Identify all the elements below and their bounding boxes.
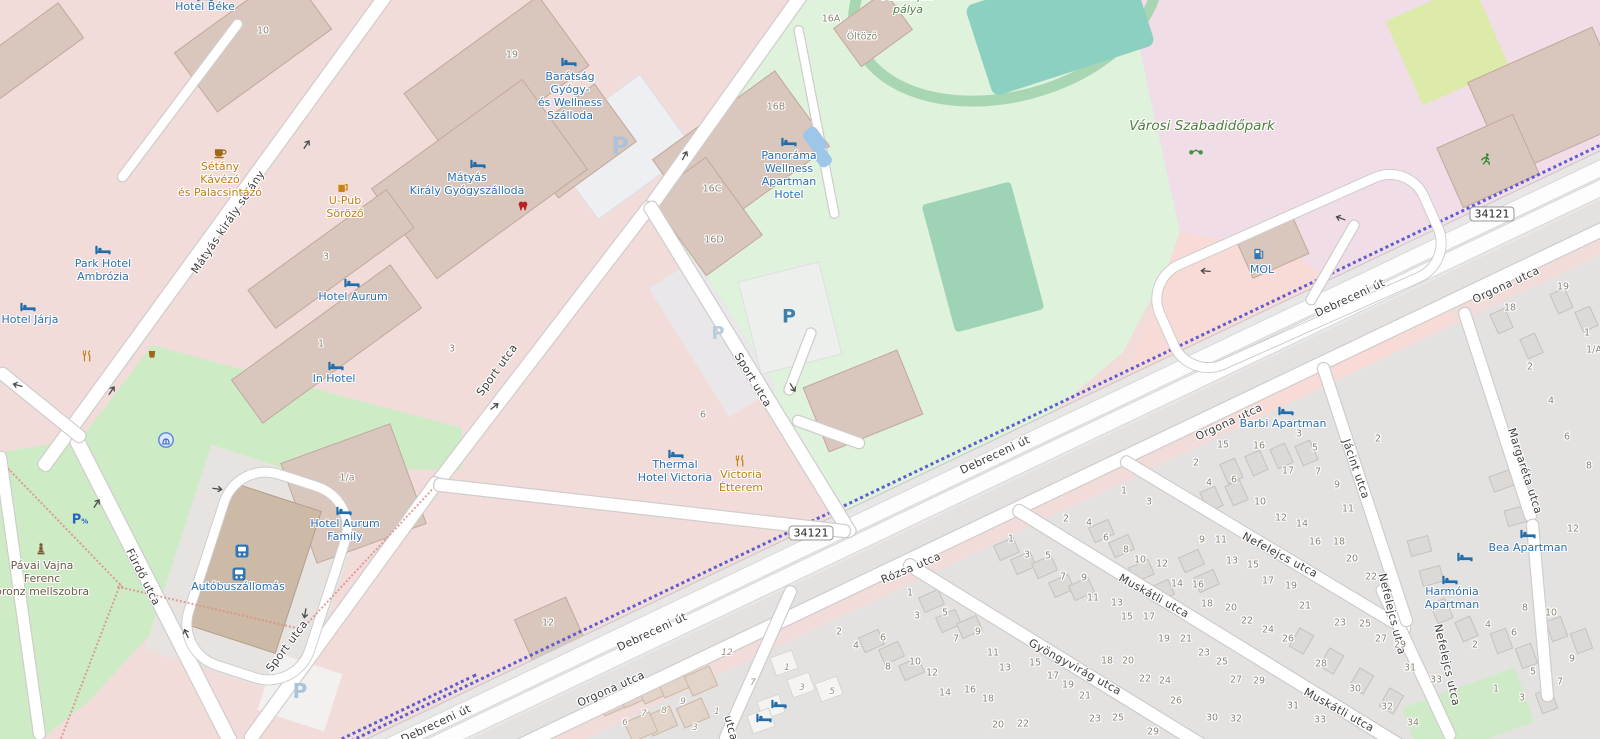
house-number: 16B (767, 102, 786, 113)
house-number: 34 (1407, 718, 1419, 729)
bed-icon (336, 505, 353, 517)
house-number: 27 (1375, 634, 1387, 645)
house-number: 30 (1206, 713, 1218, 724)
house-number: 28 (1315, 659, 1327, 670)
house-number: 22 (1139, 674, 1151, 685)
house-number: 4 (853, 641, 859, 652)
poi-label-line: és Palacsintázó (178, 187, 262, 200)
house-number: 15 (1029, 658, 1041, 669)
house-number: 10 (1134, 555, 1146, 566)
poi-label: VictoriaÉtterem (719, 469, 763, 495)
house-number: 3 (799, 683, 805, 693)
house-number: 20 (1346, 554, 1358, 565)
poi-label-line: Apartman (1425, 599, 1480, 612)
poi-label-line: Apartman (761, 176, 816, 189)
house-number: 18 (1333, 537, 1345, 548)
house (1406, 535, 1432, 557)
house-number: 5 (1045, 551, 1051, 562)
house-number: 14 (1296, 519, 1308, 530)
beer-icon (338, 181, 349, 194)
house-number: 16A (822, 14, 841, 25)
map-canvas[interactable]: Mátyás király sétányFürdő utcaSport utca… (0, 0, 1600, 739)
poi-label-line: és Wellness (538, 97, 602, 110)
parking-label: P (782, 308, 796, 327)
dentist-icon (518, 201, 529, 212)
house-number: 11 (1342, 504, 1354, 515)
house-number: 2 (1375, 434, 1381, 445)
poi-label-line: Kávézó (178, 174, 262, 187)
bed-icon (1442, 574, 1459, 586)
house-number: 27 (1230, 675, 1242, 686)
cup-icon (148, 350, 157, 359)
house-number: 31 (1287, 701, 1299, 712)
bed-icon (561, 56, 578, 68)
poi-label: In Hotel (313, 373, 356, 386)
house-number: 3 (914, 611, 920, 622)
poi-label-line: Ambrózia (75, 271, 131, 284)
house-number: 6 (700, 410, 706, 421)
house-number: 5 (1530, 667, 1536, 678)
statue-icon (37, 543, 46, 556)
house-number: 21 (1180, 634, 1192, 645)
bed-icon (470, 158, 487, 170)
poi-label-line: Family (310, 531, 379, 544)
house-number: 13 (999, 663, 1011, 674)
poi-label: Petanquepálya (882, 0, 934, 17)
poi-label: BarátságGyógy-és WellnessSzálloda (538, 71, 602, 123)
house-number: 18 (1504, 303, 1516, 314)
house-number: 8 (1123, 545, 1129, 556)
house-number: 2 (1063, 514, 1069, 525)
house-number: 9 (1199, 535, 1205, 546)
house-number: 30 (1349, 684, 1361, 695)
house-number: 29 (1394, 640, 1406, 651)
house-number: 14 (1171, 579, 1183, 590)
house-number: 1 (1493, 684, 1499, 695)
house (1107, 534, 1134, 558)
house-number: 19 (1557, 282, 1569, 293)
bed-icon (20, 301, 37, 313)
poi-label-line: pálya (882, 4, 934, 17)
house-number: 8 (885, 662, 891, 673)
bed-icon (1520, 528, 1537, 540)
house-number: 11 (987, 648, 999, 659)
poi-label-line: Hotel (761, 189, 816, 202)
house (917, 589, 944, 613)
fountain-icon (158, 432, 174, 448)
poi-label: MOL (1250, 264, 1274, 277)
house-number: 15 (1217, 440, 1229, 451)
poi-label-line: bronz mellszobra (0, 586, 89, 599)
house-number: 1/a (339, 473, 354, 484)
building (0, 2, 84, 103)
house-number: 12 (1567, 524, 1579, 535)
poi-label-line: Hotel Aurum (318, 291, 387, 304)
playground-icon (1189, 145, 1204, 156)
house-number: 3 (1146, 497, 1152, 508)
pitch (921, 181, 1044, 332)
poi-label: PanorámaWellnessApartmanHotel (761, 150, 816, 202)
house-number: 33 (1314, 715, 1326, 726)
street-label: Muskátli utca (1302, 685, 1377, 734)
house-number: 3 (1296, 429, 1302, 440)
runner-icon (1481, 153, 1492, 166)
house-number: 5 (942, 608, 948, 619)
oneway-arrow-icon (211, 484, 225, 494)
house-number: 1 (1584, 328, 1590, 339)
house-number: 12 (542, 618, 554, 629)
house-number: 32 (1230, 714, 1242, 725)
house-number: 6 (880, 633, 886, 644)
house-number: 2 (1193, 458, 1199, 469)
house-number: 21 (1079, 691, 1091, 702)
house-number: 9 (680, 697, 686, 707)
house-number: 16 (1192, 580, 1204, 591)
house-number: 19 (506, 50, 518, 61)
house-number: 7 (1060, 572, 1066, 583)
house-number: 17 (1047, 671, 1059, 682)
poi-label: Pávai VajnaFerencbronz mellszobra (0, 560, 89, 599)
bus-icon (235, 544, 249, 558)
house-number: 22 (1017, 719, 1029, 730)
parking-label: P% (72, 514, 89, 527)
house-number: 7 (641, 709, 647, 719)
bed-icon (344, 277, 361, 289)
house (1454, 615, 1478, 642)
house-number: 16 (1253, 441, 1265, 452)
house-number: 12 (926, 668, 938, 679)
house-number: 12 (1275, 513, 1287, 524)
bed-icon (1457, 551, 1474, 563)
poi-label-line: MOL (1250, 264, 1274, 277)
house-number: 17 (1143, 612, 1155, 623)
house-number: 21 (1299, 601, 1311, 612)
bed-icon (1278, 405, 1295, 417)
house-number: 31 (1404, 663, 1416, 674)
house-number: 26 (1282, 634, 1294, 645)
house (1418, 565, 1444, 587)
house (1177, 549, 1204, 573)
house-number: 11 (1087, 593, 1099, 604)
house-number: 10 (1254, 497, 1266, 508)
poi-label-line: Hotel Victoria (638, 472, 712, 485)
oneway-arrow-icon (300, 136, 314, 151)
poi-label-line: Király Gyógyszálloda (410, 185, 525, 198)
house-number: 4 (1548, 396, 1554, 407)
house-number: 22 (1365, 572, 1377, 583)
parking-label: P (611, 134, 629, 158)
bed-icon (771, 698, 788, 710)
house-number: 15 (1121, 612, 1133, 623)
poi-label: Autóbuszállomás (191, 581, 285, 594)
restaurant-icon (735, 455, 746, 468)
poi-label: Hotel AurumFamily (310, 518, 379, 544)
bed-icon (197, 0, 214, 3)
road (0, 366, 88, 445)
coffee-icon (214, 147, 227, 158)
house-number: 20 (1122, 656, 1134, 667)
poi-label-line: Söröző (326, 208, 363, 221)
house-number: 12 (1156, 559, 1168, 570)
house-number: 6 (1511, 628, 1517, 639)
house-number: 10 (257, 26, 269, 37)
house-number: 20 (992, 720, 1004, 731)
house-number: 18 (1101, 656, 1113, 667)
house-number: 12 (721, 648, 732, 658)
fee-mark: % (81, 518, 88, 526)
house-number: 25 (1112, 713, 1124, 724)
parking-label: P (293, 681, 308, 701)
house-number: 16C (703, 184, 722, 195)
house-number: 4 (1206, 478, 1212, 489)
house-number: 3 (323, 252, 329, 263)
street-label: Nefelejcs utca (1240, 530, 1320, 581)
house-number: 20 (1225, 603, 1237, 614)
restaurant-icon (82, 350, 93, 363)
house-number: 1/A (1586, 345, 1600, 356)
bed-icon (756, 712, 773, 724)
bed-icon (781, 136, 798, 148)
house-number: 8 (661, 706, 667, 716)
poi-label-line: Gyógy- (538, 84, 602, 97)
house-number: 4 (1485, 620, 1491, 631)
house-number: 3 (1519, 693, 1525, 704)
house-number: 3 (449, 344, 455, 355)
house (1569, 628, 1592, 654)
house-number: 1 (714, 707, 720, 717)
house-number: 18 (1201, 599, 1213, 610)
poi-label-line: Barbi Apartman (1240, 418, 1327, 431)
poi-label-line: Szálloda (538, 110, 602, 123)
house-number: 3 (1024, 550, 1030, 561)
bed-icon (328, 360, 345, 372)
bus-icon (232, 567, 246, 581)
house-number: 16 (964, 685, 976, 696)
house-number: 3 (692, 723, 698, 733)
house-number: 13 (1226, 556, 1238, 567)
house-number: 1 (907, 588, 913, 599)
house (1489, 628, 1512, 654)
house-number: 29 (1253, 676, 1265, 687)
poi-label-line: Hotel Járja (2, 314, 59, 327)
poi-label: SétányKávézóés Palacsintázó (178, 161, 262, 200)
house-number: 10 (1545, 608, 1557, 619)
poi-label: Hotel Járja (2, 314, 59, 327)
poi-label-line: Ferenc (0, 573, 89, 586)
house-number: 2 (1527, 362, 1533, 373)
poi-label: U-PubSöröző (326, 195, 363, 221)
house-number: 26 (1170, 696, 1182, 707)
parking-label: P (711, 325, 724, 343)
house-number: 7 (750, 678, 756, 688)
bed-icon (668, 448, 685, 460)
house-number: 6 (1103, 533, 1109, 544)
house-number: 16D (704, 235, 723, 246)
house-number: 6 (1231, 475, 1237, 486)
house-number: 24 (1159, 676, 1171, 687)
house-number: 18 (982, 694, 994, 705)
house-number: 16 (1309, 537, 1321, 548)
poi-label-line: Bea Apartman (1488, 542, 1567, 555)
poi-label: Park HotelAmbrózia (75, 258, 131, 284)
house-number: Öltöző (847, 32, 877, 43)
poi-label-line: Étterem (719, 482, 763, 495)
house-number: 5 (1312, 443, 1318, 454)
fuel-icon (1253, 248, 1265, 260)
house-number: 29 (1147, 727, 1159, 738)
house-number: 33 (1430, 675, 1442, 686)
house-number: 24 (1262, 625, 1274, 636)
house (1519, 332, 1543, 359)
poi-label: HarmóniaApartman (1425, 586, 1480, 612)
poi-label-line: Wellness (761, 163, 816, 176)
house-number: 7 (1557, 677, 1563, 688)
poi-label-line: Városi Szabadidőpark (1129, 119, 1275, 135)
house-number: 1 (1121, 486, 1127, 497)
house-number: 13 (1111, 598, 1123, 609)
house-number: 7 (1315, 467, 1321, 478)
house-number: 23 (1334, 618, 1346, 629)
house-number: 19 (1158, 634, 1170, 645)
house-number: 9 (1569, 654, 1575, 665)
bed-icon (95, 244, 112, 256)
house-number: 9 (1081, 573, 1087, 584)
house-number: 10 (909, 657, 921, 668)
house-number: 25 (1359, 619, 1371, 630)
house-number: 8 (1586, 461, 1592, 472)
house-number: 6 (622, 718, 628, 728)
street-label: Jácint utca (1340, 437, 1373, 500)
house-number: 14 (939, 688, 951, 699)
building (803, 349, 924, 452)
poi-label: Bea Apartman (1488, 542, 1567, 555)
house (1514, 643, 1537, 669)
house-number: 32 (1381, 702, 1393, 713)
house-number: 9 (975, 627, 981, 638)
house-number: 2 (836, 627, 842, 638)
house-number: 17 (1262, 576, 1274, 587)
footpath-dots (59, 583, 122, 739)
house-number: 5 (829, 687, 835, 697)
house-number: 25 (1216, 657, 1228, 668)
house-number: 9 (1334, 480, 1340, 491)
house-number: 17 (1282, 466, 1294, 477)
house-number: 1 (318, 339, 324, 350)
oneway-arrow-icon (90, 495, 104, 510)
poi-label: ThermalHotel Victoria (638, 459, 712, 485)
poi-label: MátyásKirály Gyógyszálloda (410, 172, 525, 198)
house (1244, 449, 1268, 476)
house-number: 1 (1008, 534, 1014, 545)
house-number: 19 (1285, 581, 1297, 592)
house-number: 7 (953, 634, 959, 645)
route-shield: 34121 (789, 526, 834, 541)
oneway-arrow-icon (1198, 266, 1212, 275)
house-number: 23 (1198, 648, 1210, 659)
poi-label-line: In Hotel (313, 373, 356, 386)
poi-label: Barbi Apartman (1240, 418, 1327, 431)
route-shield: 34121 (1470, 207, 1515, 222)
house-number: 19 (1062, 680, 1074, 691)
house-number: 1 (784, 663, 790, 673)
house-number: 15 (1247, 560, 1259, 571)
house-number: 8 (1522, 603, 1528, 614)
house-number: 2 (1472, 640, 1478, 651)
house-number: 4 (1086, 518, 1092, 529)
house-number: 23 (1089, 714, 1101, 725)
house-number: 11 (1215, 535, 1227, 546)
poi-label: Hotel Aurum (318, 291, 387, 304)
house-number: 6 (1564, 432, 1570, 443)
poi-label-line: Autóbuszállomás (191, 581, 285, 594)
house-number: 22 (1241, 616, 1253, 627)
poi-label: Városi Szabadidőpark (1129, 119, 1275, 135)
